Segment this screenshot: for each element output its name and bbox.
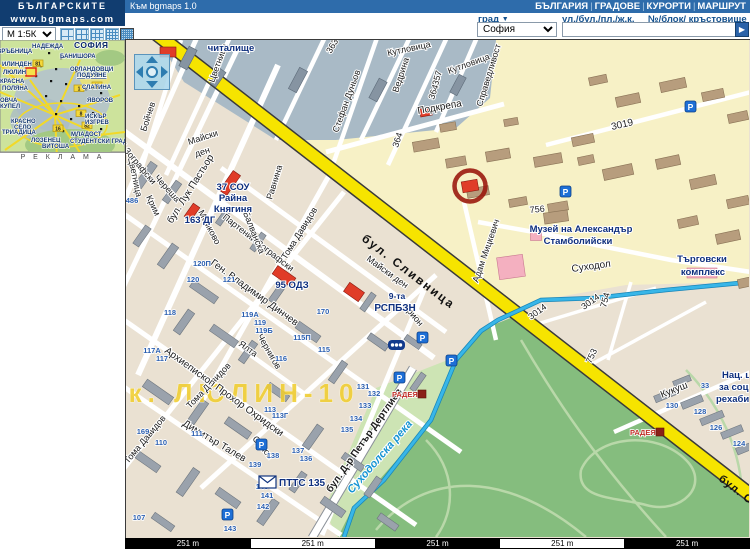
map-viewport[interactable]: ж.к. ЛЮЛИН-10ЦветницаЦветницаКутловицаКу… bbox=[125, 39, 750, 539]
radeya-logo-label: РАДЕЯ bbox=[630, 428, 656, 437]
scale-segment: 251 m bbox=[251, 539, 376, 548]
building-number: 111 bbox=[191, 429, 203, 438]
minimap-park bbox=[95, 50, 125, 66]
route-badge-label: 16 bbox=[55, 126, 61, 132]
building-number: 135 bbox=[341, 425, 354, 434]
minimap-poi-dot bbox=[45, 95, 47, 97]
transit-stop-dot bbox=[399, 343, 402, 346]
building-number: 116 bbox=[275, 354, 287, 363]
building-number: 486 bbox=[126, 196, 138, 205]
building-number: 132 bbox=[368, 389, 381, 398]
poi-label: читалище bbox=[208, 43, 254, 54]
minimap-district-link[interactable]: НАДЕЖДА bbox=[32, 44, 64, 50]
route-badge-label: 1 bbox=[78, 86, 81, 92]
building-number: 128 bbox=[694, 407, 707, 416]
building-number: 110 bbox=[155, 438, 167, 447]
parking-icon-letter: P bbox=[449, 356, 455, 366]
building-number: 169 bbox=[137, 427, 150, 436]
poi-label: ПТТС 135 bbox=[279, 478, 326, 489]
building-number: 136 bbox=[300, 454, 313, 463]
building-number: 138 bbox=[267, 451, 280, 460]
site-url[interactable]: www.bgmaps.com bbox=[0, 13, 125, 26]
poi-label: за соци bbox=[719, 382, 749, 393]
minimap-district-link[interactable]: МЛАДОСТ bbox=[71, 132, 102, 138]
pan-left-icon[interactable] bbox=[136, 66, 143, 78]
scale-segment: 251 m bbox=[625, 539, 749, 548]
parking-icon-letter: P bbox=[225, 510, 231, 520]
poi-label: Стамболийски bbox=[544, 236, 613, 247]
poi-label: Нац. це bbox=[722, 370, 749, 381]
minimap-district-link[interactable]: ПОДУЯНЕ bbox=[77, 73, 106, 79]
building-number: 107 bbox=[133, 513, 146, 522]
minimap-district-link[interactable]: ЛЮЛИН bbox=[3, 70, 26, 76]
building-number: 130 bbox=[666, 401, 679, 410]
building-number: 120П bbox=[193, 259, 211, 268]
building-number: 141 bbox=[261, 491, 274, 500]
parking-icon-letter: P bbox=[420, 333, 426, 343]
building-number: 115П bbox=[293, 333, 311, 342]
radeya-logo-icon bbox=[656, 428, 664, 436]
poi-label: 95 ОДЗ bbox=[275, 280, 308, 291]
poi-label: РСПБЗН bbox=[374, 303, 415, 314]
building-number: 121 bbox=[223, 275, 236, 284]
building-number: 139 bbox=[249, 460, 262, 469]
building-pink bbox=[497, 254, 526, 279]
poi-label: комплекс bbox=[681, 267, 725, 278]
overview-minimap[interactable]: 8111881682СОФИЯНАДЕЖДАВРЪБНИЦАБАНИШОРАИЛ… bbox=[0, 40, 125, 153]
nav-link-2[interactable]: ГРАДОВЕ bbox=[595, 1, 640, 12]
ad-label: Р Е К Л А М А bbox=[0, 154, 125, 161]
building-number: 134 bbox=[350, 414, 363, 423]
nav-link-1[interactable]: БЪЛГАРИЯ bbox=[535, 1, 588, 12]
minimap-district-link[interactable]: ЯВОРОВ bbox=[87, 98, 114, 104]
building-red bbox=[461, 179, 479, 193]
minimap-poi-dot bbox=[50, 80, 52, 82]
pan-down-icon[interactable] bbox=[146, 81, 158, 88]
building-number: 124 bbox=[733, 439, 746, 448]
parking-icon-letter: P bbox=[688, 102, 694, 112]
poi-label: 37 СОУ bbox=[217, 182, 250, 193]
minimap-district-link[interactable]: СЛАТИНА bbox=[82, 85, 112, 91]
minimap-poi-dot bbox=[60, 100, 62, 102]
street-name-label: 756 bbox=[529, 203, 545, 215]
poi-label: Търговски bbox=[677, 254, 727, 265]
building-number: 142 bbox=[257, 502, 270, 511]
minimap-poi-dot bbox=[70, 118, 72, 120]
pan-compass-control[interactable] bbox=[134, 54, 170, 90]
building-number: 117 bbox=[156, 354, 168, 363]
city-select[interactable]: София bbox=[477, 22, 557, 37]
minimap-district-link[interactable]: ВРЪБНИЦА bbox=[0, 49, 33, 55]
main-nav: БЪЛГАРИЯ|ГРАДОВЕ|КУРОРТИ|МАРШРУТ bbox=[535, 0, 746, 13]
version-link[interactable]: Към bgmaps 1.0 bbox=[130, 0, 197, 13]
building-number: 143 bbox=[224, 524, 237, 533]
building-number: 126 bbox=[710, 423, 723, 432]
minimap-district-link[interactable]: СТУДЕНТСКИ ГРАД bbox=[70, 139, 125, 145]
route-badge-label: 81 bbox=[35, 61, 41, 67]
building-number: 170 bbox=[317, 307, 330, 316]
minimap-district-link[interactable]: ИЗГРЕВ bbox=[85, 120, 109, 126]
minimap-district-link[interactable]: КУПЕЛ bbox=[0, 104, 20, 110]
current-view-marker[interactable] bbox=[26, 68, 36, 76]
minimap-poi-dot bbox=[55, 113, 57, 115]
pan-up-icon[interactable] bbox=[146, 56, 158, 63]
scale-segment: 251 m bbox=[126, 539, 251, 548]
minimap-poi-dot bbox=[48, 52, 50, 54]
minimap-district-link[interactable]: ПОЛЯНА bbox=[2, 86, 29, 92]
nav-link-3[interactable]: КУРОРТИ bbox=[647, 1, 691, 12]
minimap-district-link[interactable]: ТРИАДИЦА bbox=[2, 130, 37, 136]
parking-icon-letter: P bbox=[563, 187, 569, 197]
minimap-poi-dot bbox=[65, 83, 67, 85]
pan-center-icon[interactable] bbox=[146, 66, 158, 78]
map-scale-bar: 251 m251 m251 m251 m251 m bbox=[125, 538, 750, 549]
city-map[interactable]: ж.к. ЛЮЛИН-10ЦветницаЦветницаКутловицаКу… bbox=[126, 40, 749, 537]
building-number: 120 bbox=[187, 275, 200, 284]
poi-label: Княгиня bbox=[214, 204, 252, 215]
minimap-district-link[interactable]: ИЛИНДЕН bbox=[2, 62, 32, 68]
minimap-poi-dot bbox=[55, 68, 57, 70]
building-number: 133 bbox=[359, 401, 372, 410]
minimap-district-link[interactable]: ВИТОША bbox=[42, 144, 70, 150]
building-number: 119Б bbox=[255, 326, 273, 335]
parking-icon-letter: P bbox=[259, 440, 265, 450]
minimap-poi-dot bbox=[100, 128, 102, 130]
building-number: 113Г bbox=[272, 411, 289, 420]
minimap-poi-dot bbox=[100, 92, 102, 94]
poi-label: рехабили bbox=[716, 394, 749, 405]
minimap-district-link[interactable]: БАНИШОРА bbox=[60, 54, 96, 60]
search-go-button[interactable]: ▶ bbox=[735, 22, 749, 37]
minimap-title: СОФИЯ bbox=[74, 40, 109, 50]
route-badge-label: 8 bbox=[80, 111, 83, 117]
poi-label: Музей на Александър bbox=[530, 224, 633, 235]
poi-label: 163 ДГ bbox=[185, 215, 216, 226]
poi-label: 9-та bbox=[389, 291, 406, 301]
radeya-logo-label: РАДЕЯ bbox=[392, 390, 418, 399]
building-number: 118 bbox=[164, 308, 176, 317]
bgmaps-app: БЪЛГАРСКИТЕ КАРТИ Към bgmaps 1.0 БЪЛГАРИ… bbox=[0, 0, 750, 554]
building-number: 115 bbox=[318, 345, 330, 354]
search-input[interactable] bbox=[562, 22, 736, 37]
transit-stop-dot bbox=[391, 343, 394, 346]
building-number: 33 bbox=[701, 381, 709, 390]
pan-right-icon[interactable] bbox=[161, 66, 168, 78]
poi-label: Райна bbox=[219, 193, 248, 204]
scale-segment: 251 m bbox=[376, 539, 501, 548]
nav-link-4[interactable]: МАРШРУТ bbox=[697, 1, 746, 12]
site-brand: БЪЛГАРСКИТЕ КАРТИ bbox=[0, 0, 125, 13]
radeya-logo-icon bbox=[418, 390, 426, 398]
minimap-poi-dot bbox=[78, 105, 80, 107]
transit-stop-dot bbox=[395, 343, 398, 346]
top-bar: БЪЛГАРСКИТЕ КАРТИ Към bgmaps 1.0 БЪЛГАРИ… bbox=[0, 0, 750, 13]
scale-segment: 251 m bbox=[500, 539, 625, 548]
minimap-district-link[interactable]: КРАСНА bbox=[0, 79, 25, 85]
parking-icon-letter: P bbox=[397, 373, 403, 383]
